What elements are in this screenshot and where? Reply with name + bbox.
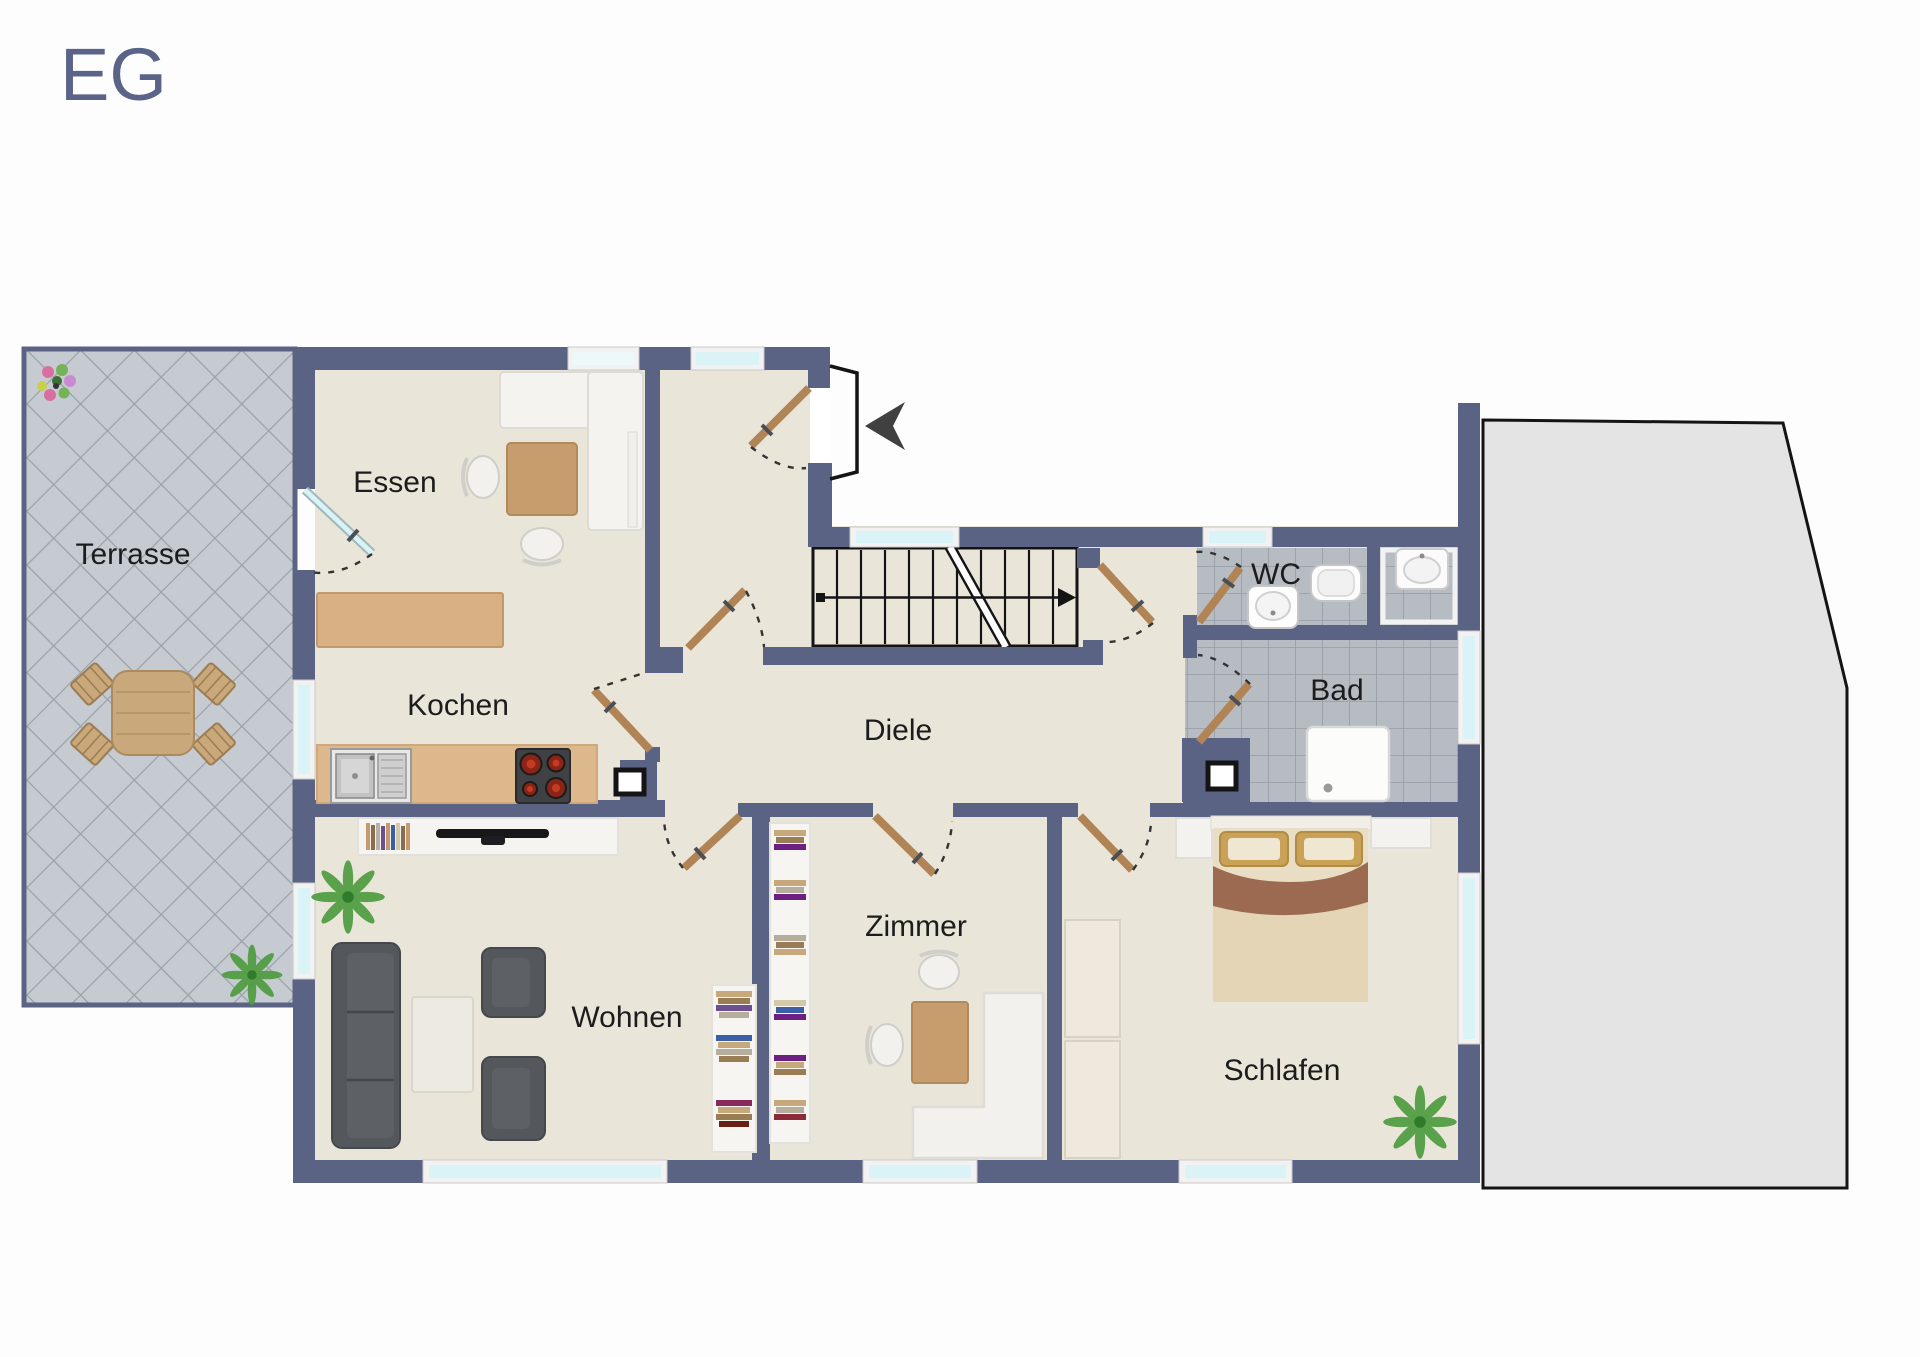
chimney-shaft-diele [616, 770, 644, 794]
bedside-table [1176, 818, 1212, 858]
garage-area [1483, 420, 1847, 1188]
room-label-essen: Essen [353, 466, 436, 499]
shower-tray [1307, 727, 1389, 801]
toilet [1311, 565, 1361, 601]
bookshelf [712, 985, 756, 1152]
double-bed [1211, 816, 1371, 1002]
room-label-schlafen: Schlafen [1224, 1054, 1341, 1087]
window-zimmer-south [863, 1160, 977, 1183]
room-label-zimmer: Zimmer [865, 910, 967, 943]
room-label-bad: Bad [1310, 674, 1363, 707]
window-bad-east [1458, 631, 1480, 744]
floorplan-page: Terrasse Essen Kochen Diele WC Bad Wohne… [0, 0, 1920, 1357]
window-stairs [850, 527, 959, 547]
desk [912, 1002, 968, 1083]
window-wohnen-south [423, 1160, 667, 1183]
floor-title: EG [60, 33, 167, 116]
room-label-wc: WC [1251, 558, 1301, 591]
kochen-furniture [317, 745, 597, 803]
window-wc-top [1203, 527, 1272, 547]
cooktop [516, 749, 570, 803]
dining-table [507, 443, 577, 515]
washbasin [1248, 586, 1298, 628]
bookshelf [770, 823, 810, 1143]
floorplan-canvas: Terrasse Essen Kochen Diele WC Bad Wohne… [0, 0, 1920, 1357]
room-label-kochen: Kochen [407, 689, 509, 722]
terrace-plant-icon [222, 945, 283, 1006]
window-schlafen-east [1458, 873, 1480, 1044]
front-door-threshold [810, 388, 830, 463]
room-label-wohnen: Wohnen [571, 1001, 682, 1034]
schlafen-plant-icon [1383, 1085, 1457, 1159]
sideboard [317, 593, 503, 647]
chimney-shaft-bad [1208, 763, 1236, 789]
window-entrance-top [691, 347, 764, 370]
room-label-diele: Diele [864, 714, 932, 747]
bedside-table [1371, 818, 1431, 848]
room-label-terrasse: Terrasse [75, 538, 190, 571]
sofa [332, 943, 400, 1148]
coffee-table [412, 997, 473, 1092]
armchair [482, 1057, 545, 1140]
terrace-area [22, 347, 297, 1007]
books [366, 823, 410, 850]
niche-washbasin [1396, 549, 1448, 589]
bad-fixtures [1307, 727, 1389, 801]
window-essen-top [568, 347, 639, 370]
armchair [482, 948, 545, 1017]
outside-notch [830, 300, 1458, 526]
window-kochen-west [293, 680, 315, 779]
kitchen-sink [331, 749, 411, 803]
radiator [628, 432, 637, 527]
wohnen-plant-icon [311, 860, 385, 934]
window-schlafen-south [1179, 1160, 1292, 1183]
